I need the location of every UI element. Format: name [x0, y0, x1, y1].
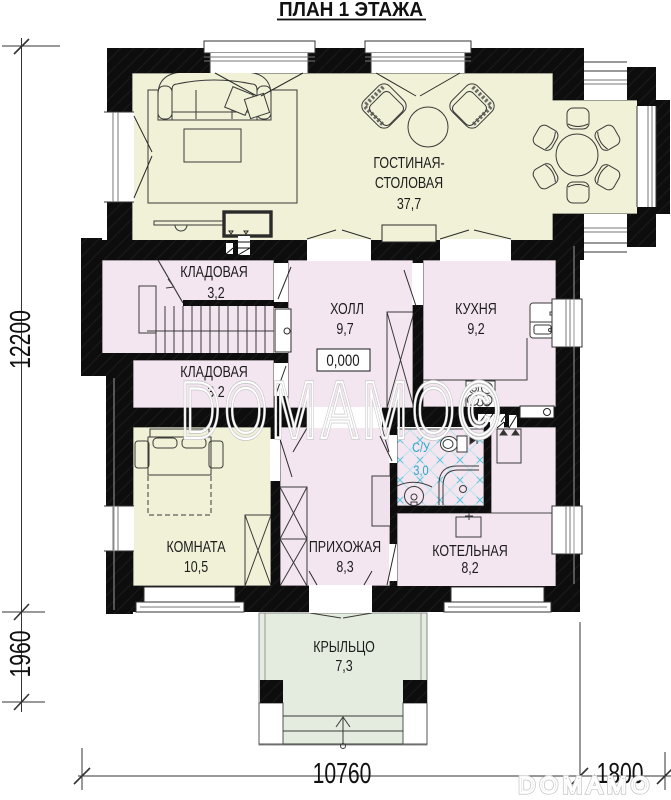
svg-text:ХОЛЛ: ХОЛЛ — [330, 301, 364, 319]
svg-text:СТОЛОВАЯ: СТОЛОВАЯ — [375, 175, 443, 193]
svg-text:1960: 1960 — [5, 630, 37, 677]
svg-text:КОТЕЛЬНАЯ: КОТЕЛЬНАЯ — [432, 543, 507, 561]
svg-text:9,7: 9,7 — [336, 321, 353, 339]
svg-text:DOMAMO: DOMAMO — [518, 772, 653, 798]
svg-text:КУХНЯ: КУХНЯ — [455, 301, 497, 319]
svg-text:3,2: 3,2 — [207, 285, 224, 303]
svg-text:3,0: 3,0 — [413, 463, 428, 479]
svg-text:КРЫЛЬЦО: КРЫЛЬЦО — [313, 639, 375, 657]
svg-text:ПРИХОЖАЯ: ПРИХОЖАЯ — [309, 539, 381, 557]
svg-text:КОМНАТА: КОМНАТА — [166, 539, 225, 557]
svg-text:10,5: 10,5 — [184, 559, 208, 577]
svg-text:12200: 12200 — [5, 310, 37, 369]
svg-text:7,3: 7,3 — [335, 658, 352, 676]
svg-text:8,2: 8,2 — [461, 560, 478, 578]
svg-text:37,7: 37,7 — [397, 196, 421, 214]
svg-text:8,3: 8,3 — [336, 559, 353, 577]
svg-text:ГОСТИНАЯ-: ГОСТИНАЯ- — [373, 155, 445, 173]
svg-text:КЛАДОВАЯ: КЛАДОВАЯ — [180, 264, 248, 282]
svg-text:ПЛАН 1 ЭТАЖА: ПЛАН 1 ЭТАЖА — [279, 0, 423, 21]
svg-text:DOMAMO©: DOMAMO© — [180, 364, 503, 455]
svg-text:10760: 10760 — [313, 758, 372, 790]
svg-text:9,2: 9,2 — [467, 321, 484, 339]
